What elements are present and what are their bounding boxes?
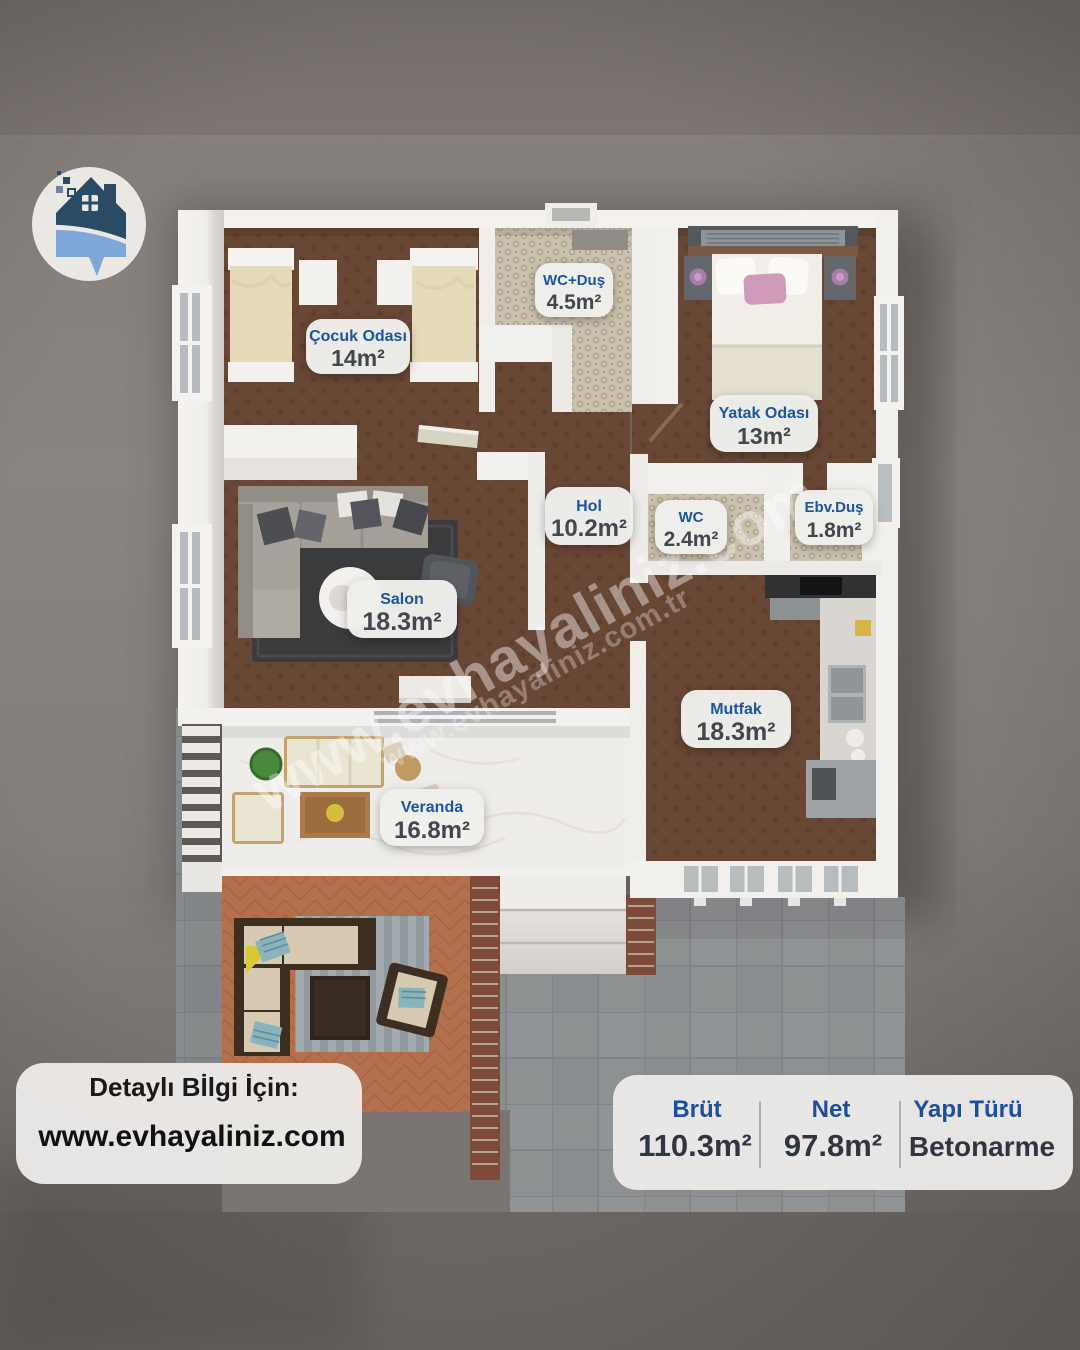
svg-text:Brüt: Brüt (672, 1096, 721, 1123)
svg-text:Ebv.Duş: Ebv.Duş (805, 499, 864, 516)
svg-text:Hol: Hol (576, 498, 602, 515)
svg-text:1.8m²: 1.8m² (807, 519, 862, 542)
svg-text:WC+Duş: WC+Duş (543, 272, 605, 289)
svg-text:WC: WC (679, 509, 704, 526)
svg-text:Detaylı Bİlgi İçin:: Detaylı Bİlgi İçin: (89, 1072, 299, 1102)
svg-text:Salon: Salon (380, 591, 424, 608)
svg-text:Mutfak: Mutfak (710, 701, 762, 718)
svg-text:2.4m²: 2.4m² (664, 528, 719, 551)
svg-text:13m²: 13m² (737, 423, 791, 449)
svg-text:18.3m²: 18.3m² (362, 608, 441, 636)
svg-text:www.evhayaliniz.com: www.evhayaliniz.com (37, 1120, 345, 1153)
svg-text:4.5m²: 4.5m² (547, 291, 602, 314)
svg-text:Yapı Türü: Yapı Türü (913, 1096, 1022, 1123)
svg-text:18.3m²: 18.3m² (696, 718, 775, 746)
svg-text:10.2m²: 10.2m² (551, 515, 627, 542)
svg-text:110.3m²: 110.3m² (638, 1128, 752, 1163)
svg-text:Betonarme: Betonarme (909, 1131, 1055, 1162)
svg-text:16.8m²: 16.8m² (394, 817, 470, 844)
svg-text:97.8m²: 97.8m² (784, 1128, 882, 1163)
svg-text:Yatak Odası: Yatak Odası (719, 405, 810, 422)
svg-text:Veranda: Veranda (401, 799, 463, 816)
svg-text:Çocuk Odası: Çocuk Odası (309, 328, 407, 345)
svg-text:14m²: 14m² (331, 345, 385, 371)
svg-text:Net: Net (812, 1096, 851, 1123)
